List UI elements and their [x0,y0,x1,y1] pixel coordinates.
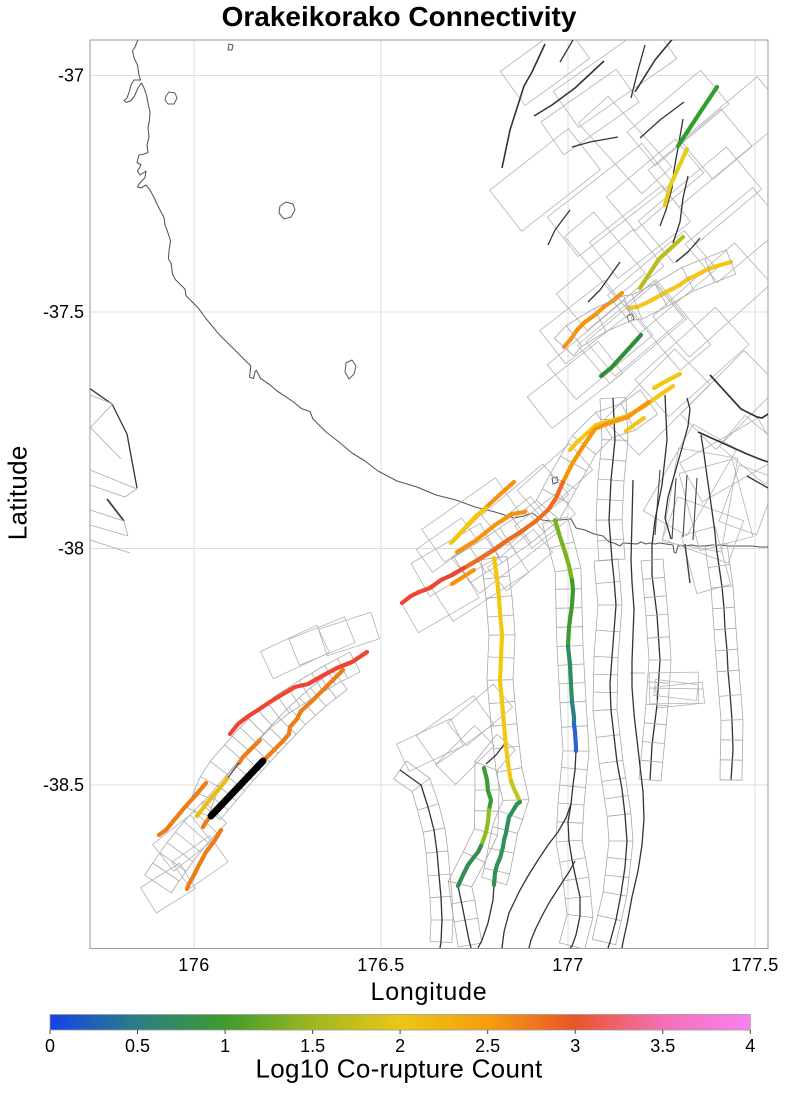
svg-text:Latitude: Latitude [3,445,33,540]
svg-text:-37: -37 [58,66,84,86]
svg-text:-38.5: -38.5 [43,775,84,795]
svg-text:3: 3 [570,1036,580,1056]
svg-text:0.5: 0.5 [125,1036,150,1056]
svg-text:Longitude: Longitude [370,978,487,1006]
svg-text:Log10 Co-rupture Count: Log10 Co-rupture Count [255,1054,542,1084]
svg-text:-37.5: -37.5 [43,302,84,322]
svg-text:3.5: 3.5 [650,1036,675,1056]
svg-text:0: 0 [45,1036,55,1056]
svg-text:177: 177 [552,955,584,975]
svg-text:Orakeikorako Connectivity: Orakeikorako Connectivity [222,1,577,32]
svg-text:176.5: 176.5 [357,955,405,975]
svg-text:1: 1 [220,1036,230,1056]
svg-text:177.5: 177.5 [731,955,779,975]
svg-text:-38: -38 [58,539,84,559]
svg-text:4: 4 [745,1036,755,1056]
svg-text:176: 176 [178,955,210,975]
